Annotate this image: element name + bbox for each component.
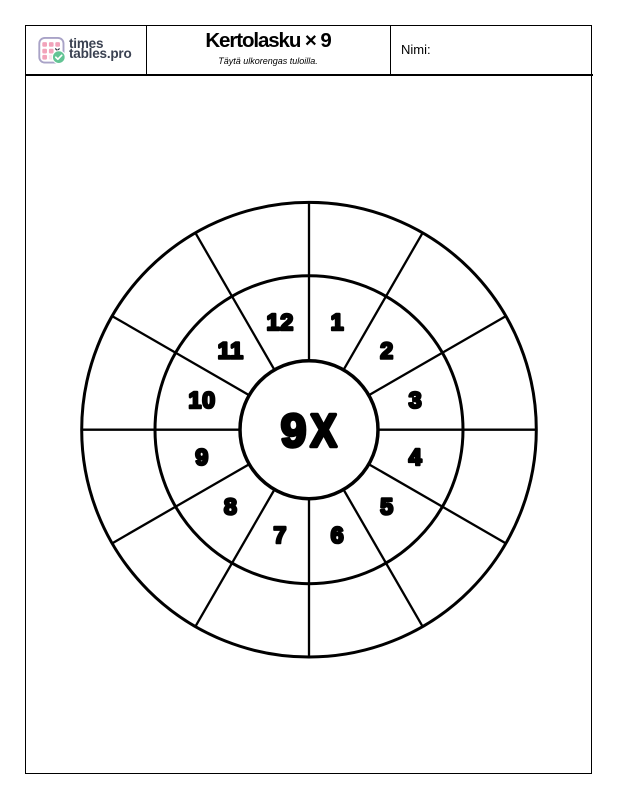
svg-text:5: 5 [380, 494, 394, 520]
svg-text:7: 7 [274, 522, 288, 548]
svg-text:10: 10 [189, 387, 217, 413]
svg-text:8: 8 [224, 494, 238, 520]
svg-text:4: 4 [409, 444, 423, 470]
svg-text:9: 9 [195, 444, 209, 470]
svg-text:1: 1 [331, 309, 345, 335]
svg-text:3: 3 [409, 387, 423, 413]
svg-text:6: 6 [331, 522, 345, 548]
svg-text:2: 2 [380, 337, 394, 363]
svg-text:9: 9 [281, 405, 307, 457]
svg-text:12: 12 [267, 309, 295, 335]
svg-text:11: 11 [218, 337, 244, 363]
svg-text:X: X [310, 406, 337, 457]
